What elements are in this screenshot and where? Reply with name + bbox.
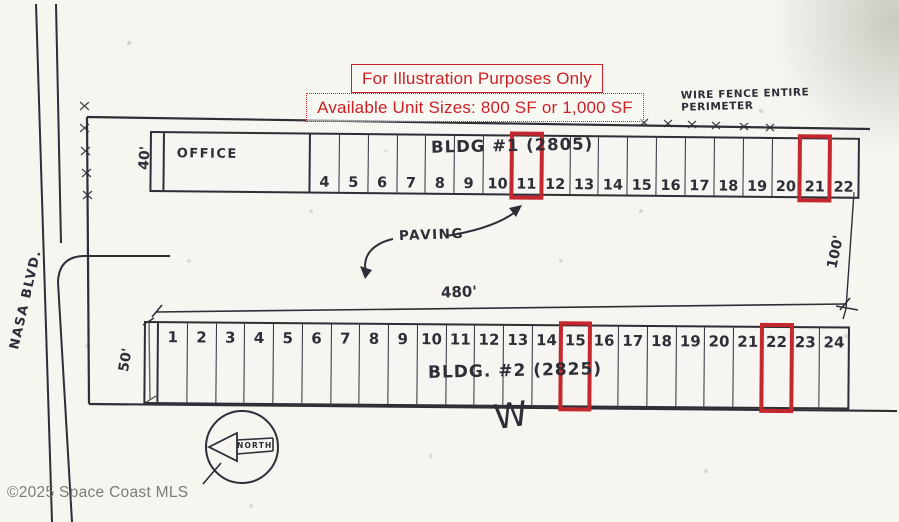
unit-number: 24 <box>823 328 844 351</box>
unit-number: 14 <box>603 177 623 194</box>
unit-cell-15: 15 <box>627 138 656 195</box>
unit-number: 19 <box>680 327 701 350</box>
unit-number: 1 <box>167 323 178 346</box>
unit-number: 4 <box>319 175 329 192</box>
unit-number: 11 <box>516 177 536 194</box>
unit-number: 22 <box>833 180 853 197</box>
unit-cell-17: 17 <box>684 138 713 195</box>
unit-number: 20 <box>776 179 796 196</box>
unit-number: 15 <box>565 326 586 349</box>
unit-cell-21: 21 <box>732 328 761 407</box>
unit-number: 14 <box>536 326 557 349</box>
dim-label-480ft: 480' <box>441 282 478 301</box>
unit-number: 18 <box>718 178 738 195</box>
wire-fence-note: WIRE FENCE ENTIRE PERIMETER <box>681 87 810 113</box>
building-1-address: (2805) <box>526 134 593 154</box>
building-2-address: (2825) <box>533 359 602 380</box>
unit-number: 13 <box>507 326 528 349</box>
unit-cell-4: 4 <box>244 324 273 403</box>
north-label: NORTH <box>237 441 272 450</box>
unit-cell-2: 2 <box>186 323 215 402</box>
unit-number: 9 <box>464 176 474 193</box>
site-plan-scan: For Illustration Purposes Only Available… <box>0 0 899 522</box>
unit-cell-17: 17 <box>617 327 646 406</box>
unit-number: 3 <box>225 324 236 347</box>
copyright-text: ©2025 Space Coast MLS <box>7 484 188 502</box>
unit-cell-19: 19 <box>742 139 771 196</box>
unit-number: 11 <box>450 325 471 348</box>
unit-number: 16 <box>593 327 614 350</box>
unit-cell-1: 1 <box>158 323 186 402</box>
unit-cell-5: 5 <box>272 324 301 403</box>
building-1-title: BLDG #1 (2805) <box>431 134 594 156</box>
unit-number: 13 <box>574 177 594 194</box>
notice-unit-sizes: Available Unit Sizes: 800 SF or 1,000 SF <box>306 93 644 122</box>
building-2-title: BLDG. #2 (2825) <box>428 359 602 383</box>
unit-number: 7 <box>406 175 416 192</box>
unit-number: 12 <box>545 177 565 194</box>
unit-cell-19: 19 <box>675 327 704 406</box>
unit-cell-14: 14 <box>598 137 627 194</box>
building-1-end-cell <box>151 133 165 190</box>
unit-cell-6: 6 <box>301 324 330 403</box>
unit-number: 8 <box>435 176 445 193</box>
unit-number: 10 <box>487 176 507 193</box>
unit-number: 12 <box>478 326 499 349</box>
unit-cell-3: 3 <box>215 324 244 403</box>
unit-number: 8 <box>369 325 380 348</box>
unit-cell-16: 16 <box>656 138 685 195</box>
unit-cell-22: 22 <box>761 328 790 407</box>
unit-number: 5 <box>348 175 358 192</box>
unit-number: 6 <box>377 175 387 192</box>
unit-number: 16 <box>660 178 680 195</box>
unit-number: 18 <box>651 327 672 350</box>
unit-number: 2 <box>196 323 207 346</box>
unit-cell-7: 7 <box>330 324 359 403</box>
unit-number: 5 <box>282 324 293 347</box>
building-2-end-cell <box>145 323 159 402</box>
w-mark: W <box>491 394 530 438</box>
unit-number: 7 <box>340 325 351 348</box>
road-lines <box>36 4 170 522</box>
unit-number: 15 <box>632 178 652 195</box>
unit-number: 17 <box>689 178 709 195</box>
unit-number: 21 <box>737 328 758 351</box>
unit-cell-7: 7 <box>396 135 425 192</box>
unit-cell-18: 18 <box>713 138 742 195</box>
unit-number: 22 <box>766 328 787 351</box>
unit-cell-6: 6 <box>367 135 396 192</box>
unit-number: 9 <box>397 325 408 348</box>
unit-cell-24: 24 <box>819 328 848 407</box>
unit-cell-20: 20 <box>704 327 733 406</box>
unit-cell-18: 18 <box>646 327 675 406</box>
unit-number: 21 <box>805 179 825 196</box>
unit-number: 4 <box>254 324 265 347</box>
unit-cell-20: 20 <box>771 139 800 196</box>
dim-label-40ft: 40' <box>136 146 154 171</box>
unit-number: 23 <box>795 328 816 351</box>
unit-cell-5: 5 <box>338 135 367 192</box>
unit-cell-21: 21 <box>800 139 829 196</box>
unit-cell-9: 9 <box>387 325 416 404</box>
building-1-label: BLDG #1 <box>431 136 520 157</box>
unit-cell-8: 8 <box>359 325 388 404</box>
unit-number: 6 <box>311 324 322 347</box>
dim-line-480 <box>152 298 850 317</box>
unit-cell-4: 4 <box>310 135 338 192</box>
office-cell: OFFICE <box>164 133 311 191</box>
paving-label: PAVING <box>399 226 465 244</box>
unit-number: 20 <box>708 327 729 350</box>
unit-number: 17 <box>622 327 643 350</box>
building-2-label: BLDG. #2 <box>428 361 527 383</box>
notice-illustration-only: For Illustration Purposes Only <box>351 64 603 93</box>
unit-cell-23: 23 <box>790 328 819 407</box>
unit-cell-22: 22 <box>829 140 858 197</box>
unit-number: 19 <box>747 179 767 196</box>
unit-number: 10 <box>421 325 442 348</box>
